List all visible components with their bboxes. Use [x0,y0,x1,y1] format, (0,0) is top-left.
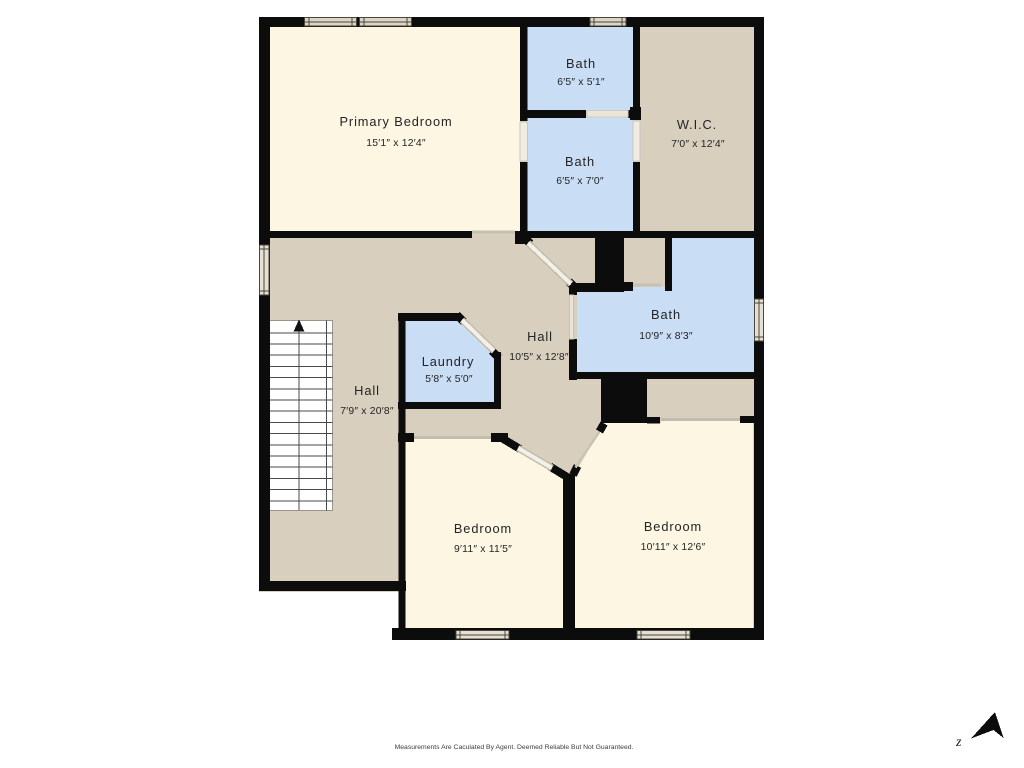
svg-text:10′11″ x 12′6″: 10′11″ x 12′6″ [641,542,706,553]
svg-text:7′9″ x 20′8″: 7′9″ x 20′8″ [340,406,394,417]
svg-text:7′0″ x 12′4″: 7′0″ x 12′4″ [671,139,725,150]
svg-text:Hall: Hall [527,329,553,344]
svg-text:Primary Bedroom: Primary Bedroom [339,114,452,129]
svg-text:15′1″ x 12′4″: 15′1″ x 12′4″ [366,138,426,149]
svg-text:5′8″ x 5′0″: 5′8″ x 5′0″ [425,374,473,385]
svg-text:10′5″ x 12′8″: 10′5″ x 12′8″ [509,352,569,363]
svg-text:6′5″ x 7′0″: 6′5″ x 7′0″ [556,176,604,187]
svg-text:Bath: Bath [565,154,595,169]
svg-text:Bath: Bath [566,56,596,71]
svg-text:Bedroom: Bedroom [644,519,702,534]
svg-text:Laundry: Laundry [422,354,475,369]
svg-text:Measurements Are Caculated By: Measurements Are Caculated By Agent. Dee… [395,744,634,751]
svg-text:6′5″ x 5′1″: 6′5″ x 5′1″ [557,77,605,88]
svg-text:W.I.C.: W.I.C. [677,117,717,132]
svg-text:Bath: Bath [651,307,681,322]
svg-text:10′9″ x 8′3″: 10′9″ x 8′3″ [639,331,693,342]
svg-text:Bedroom: Bedroom [454,521,512,536]
svg-text:z: z [955,735,962,750]
svg-text:9′11″ x 11′5″: 9′11″ x 11′5″ [454,544,512,555]
svg-text:Hall: Hall [354,383,380,398]
